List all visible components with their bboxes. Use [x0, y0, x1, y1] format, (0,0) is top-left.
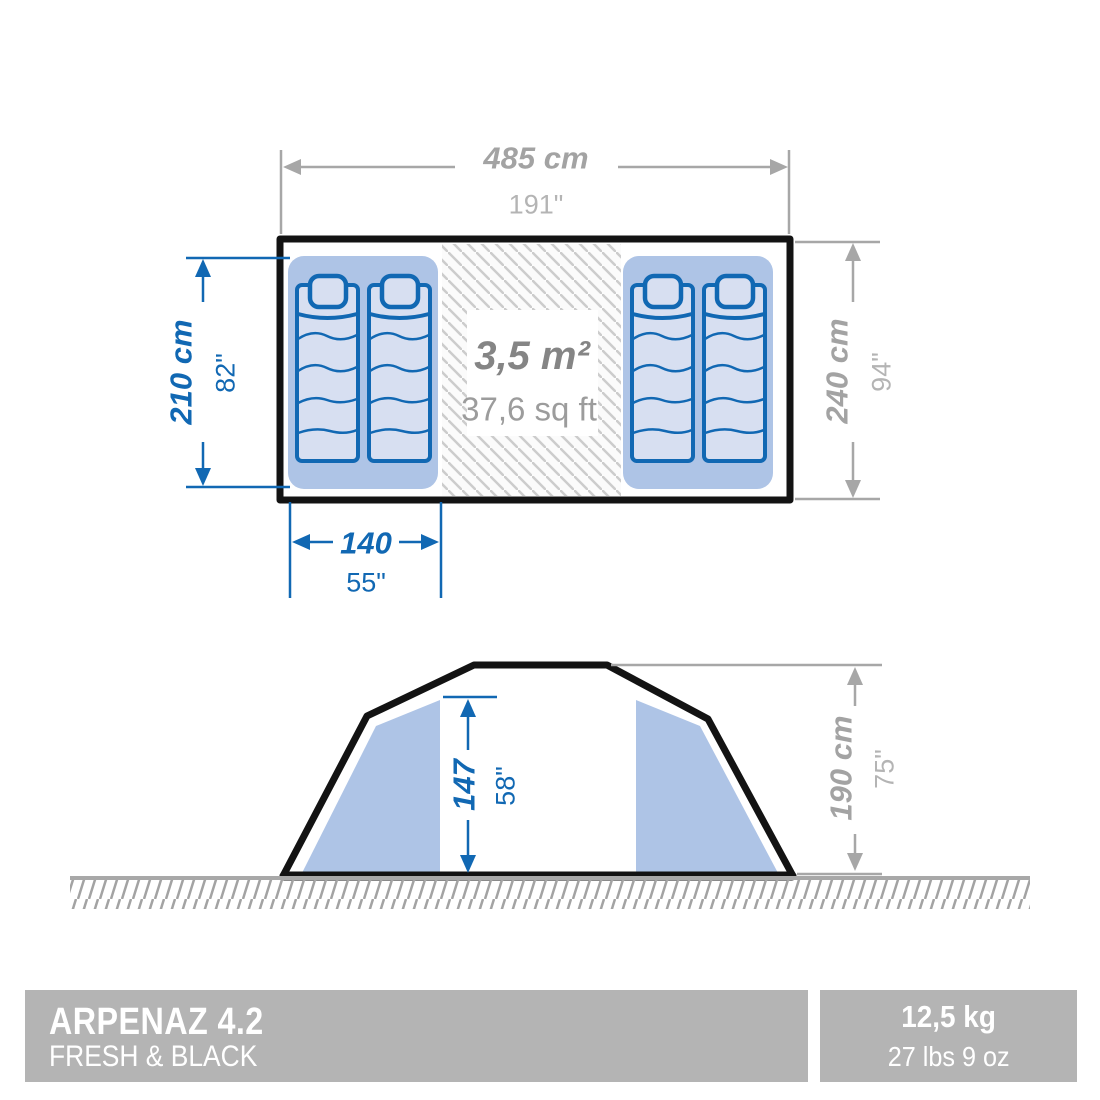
sleeping-pad-3	[632, 276, 693, 461]
product-badge: ARPENAZ 4.2 FRESH & BLACK	[25, 990, 808, 1082]
bedroom-depth-in-label: 82"	[213, 353, 240, 393]
plan-width-in-label: 191"	[509, 192, 564, 219]
sleeping-pad-4	[704, 276, 765, 461]
outer-depth-in-label: 94"	[869, 352, 896, 392]
weight-badge: 12,5 kg 27 lbs 9 oz	[820, 990, 1077, 1082]
weight-kg-label: 12,5 kg	[901, 999, 996, 1035]
ground-hatch	[70, 880, 1030, 909]
living-area-m2-label: 3,5 m²	[474, 336, 590, 376]
living-area-sqft-label: 37,6 sq ft	[461, 393, 597, 426]
weight-lbs-label: 27 lbs 9 oz	[888, 1041, 1010, 1073]
outer-height-in-label: 75"	[872, 749, 899, 789]
inner-height-cm-label: 147	[449, 759, 480, 811]
plan-width-cm-label: 485 cm	[483, 143, 588, 174]
inner-height-in-label: 58"	[493, 766, 520, 806]
product-line: FRESH & BLACK	[49, 1040, 257, 1074]
bedroom-depth-cm-label: 210 cm	[166, 319, 197, 424]
product-name: ARPENAZ 4.2	[49, 1001, 264, 1044]
outer-depth-cm-label: 240 cm	[822, 318, 853, 423]
bed-width-cm-label: 140	[340, 528, 392, 559]
sleeping-pad-2	[369, 276, 430, 461]
sleeping-pad-1	[297, 276, 358, 461]
tent-dimensions-diagram: 485 cm 191" 210 cm 82" 240 cm 94" 140 55…	[0, 0, 1100, 1100]
bed-width-in-label: 55"	[346, 570, 386, 597]
outer-height-cm-label: 190 cm	[826, 715, 857, 820]
